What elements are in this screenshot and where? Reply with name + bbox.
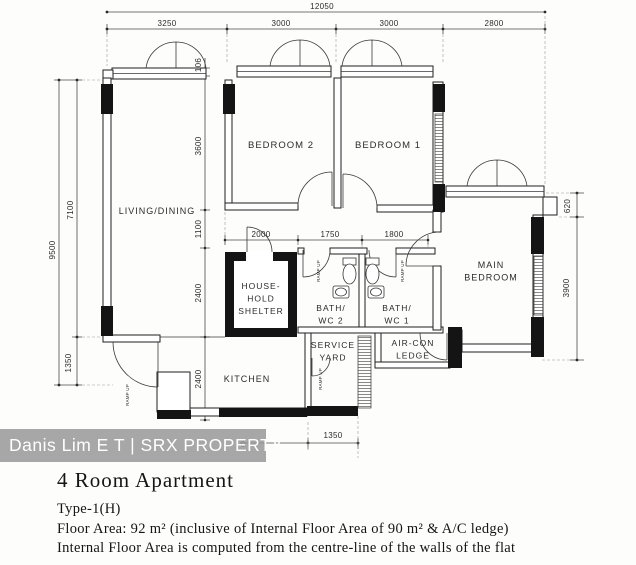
dimension-label: 9500: [48, 240, 57, 259]
dimension-label: 1800: [385, 230, 404, 239]
room-label-household-shelter: HOUSE-: [241, 281, 280, 291]
room-label-bath-wc-1: BATH/: [382, 303, 411, 313]
plan-title: 4 Room Apartment: [57, 468, 515, 493]
dimension-label: 3250: [158, 19, 177, 28]
dimension-label: 3000: [380, 19, 399, 28]
plan-type: Type-1(H): [57, 500, 515, 520]
room-label-bedroom-2: BEDROOM 2: [248, 140, 314, 151]
plan-note: Internal Floor Area is computed from the…: [57, 539, 515, 559]
dimension-label: 1750: [321, 230, 340, 239]
ramp-up-label: RAMP UP: [318, 368, 323, 390]
ramp-up-label: RAMP UP: [125, 384, 130, 406]
dimension-label: 1350: [324, 431, 343, 440]
room-label-air-con-ledge: LEDGE: [396, 351, 430, 361]
room-label-bath-wc-2: BATH/: [316, 303, 345, 313]
room-label-main-bedroom: MAIN: [478, 260, 505, 270]
room-label-living-dining: LIVING/DINING: [119, 206, 196, 216]
room-label-bath-wc-2: WC 2: [318, 316, 343, 326]
room-label-main-bedroom: BEDROOM: [464, 273, 518, 283]
room-label-bath-wc-1: WC 1: [384, 316, 409, 326]
room-label-air-con-ledge: AIR-CON: [392, 338, 435, 348]
dimension-label: 2800: [485, 19, 504, 28]
room-label-bedroom-1: BEDROOM 1: [355, 140, 421, 151]
dimension-label: 3000: [272, 19, 291, 28]
room-label-service-yard: SERVICE: [311, 340, 355, 350]
dimension-label: 7100: [66, 200, 75, 219]
dimension-label: 2000: [252, 230, 271, 239]
dimension-label: 1100: [194, 220, 203, 239]
dimension-label: 3600: [194, 136, 203, 155]
room-label-kitchen: KITCHEN: [224, 374, 271, 384]
dimension-label: 106: [194, 58, 203, 72]
floorplan-page: 1205032503000300028009500710013501063600…: [0, 0, 636, 565]
ramp-up-label: RAMP UP: [400, 260, 405, 282]
room-label-household-shelter: HOLD: [247, 294, 275, 304]
dimension-label: 2400: [194, 369, 203, 388]
dimension-label: 3900: [562, 278, 571, 297]
dimension-label: 620: [563, 199, 572, 213]
dimension-label: 12050: [310, 2, 334, 11]
ramp-up-label: RAMP UP: [316, 260, 321, 282]
dimension-label: 2400: [194, 283, 203, 302]
floorplan-drawing: 1205032503000300028009500710013501063600…: [0, 0, 636, 468]
plan-floor-area: Floor Area: 92 m² (inclusive of Internal…: [57, 520, 515, 540]
room-label-household-shelter: SHELTER: [238, 306, 284, 316]
room-label-service-yard: YARD: [320, 353, 347, 363]
watermark: Danis Lim E T | SRX PROPERTY: [0, 429, 266, 462]
caption: 4 Room Apartment Type-1(H) Floor Area: 9…: [57, 468, 515, 559]
dimension-label: 1350: [64, 353, 73, 372]
